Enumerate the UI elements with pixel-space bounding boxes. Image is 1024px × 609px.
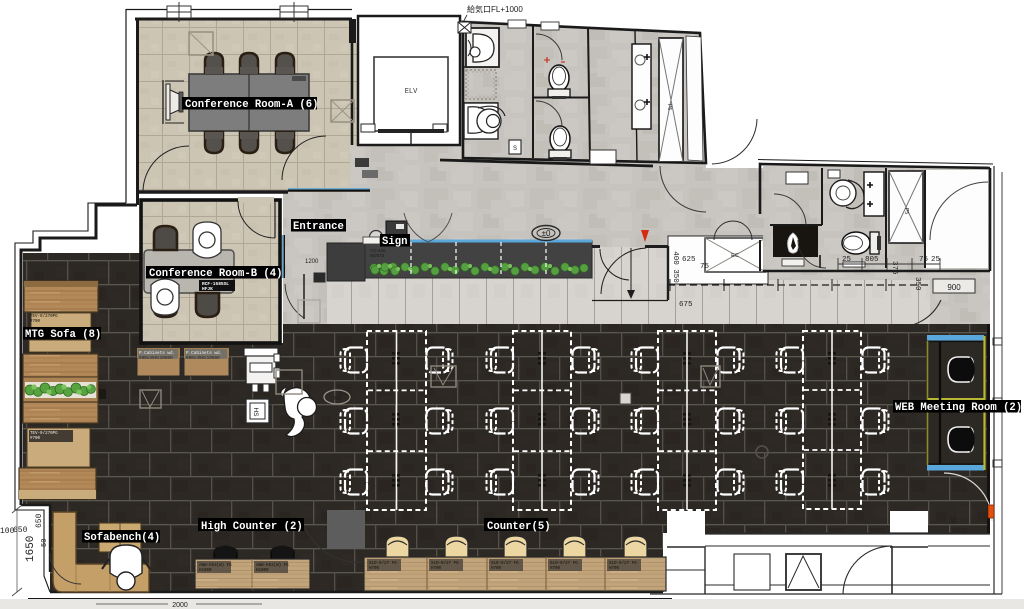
svg-text:350: 350 [913, 277, 921, 291]
svg-text:25: 25 [842, 256, 852, 264]
svg-text:Sofabench(4): Sofabench(4) [84, 532, 160, 544]
svg-text:P5: P5 [903, 208, 909, 214]
svg-text:ELV: ELV [405, 88, 418, 96]
svg-text:S: S [513, 146, 517, 152]
svg-text:#700: #700 [30, 437, 41, 441]
svg-text:±0: ±0 [542, 229, 551, 238]
svg-text:High Counter (2): High Counter (2) [201, 521, 303, 533]
svg-text:EC: EC [731, 253, 739, 259]
svg-text:1200: 1200 [305, 259, 319, 265]
svg-text:350: 350 [671, 269, 679, 283]
svg-text:805: 805 [865, 256, 879, 264]
svg-text:HFJK: HFJK [202, 286, 213, 292]
svg-text:H700: H700 [431, 567, 442, 571]
svg-text:#700: #700 [30, 320, 41, 324]
svg-text:SLO-9/27 FG: SLO-9/27 FG [491, 561, 519, 566]
svg-text:675: 675 [679, 301, 693, 309]
svg-text:75: 75 [919, 256, 929, 264]
svg-text:W2073: W2073 [370, 253, 385, 258]
svg-text:SLO-9/27 FG: SLO-9/27 FG [369, 561, 397, 566]
svg-text:TEV-9/270PG: TEV-9/270PG [30, 314, 58, 319]
svg-text:375: 375 [890, 261, 898, 275]
svg-text:H700: H700 [550, 567, 561, 571]
svg-text:Sign: Sign [382, 236, 407, 248]
svg-text:H1000: H1000 [199, 569, 212, 573]
svg-text:WEB Meeting Room (2): WEB Meeting Room (2) [895, 402, 1022, 414]
svg-text:Counter(5): Counter(5) [487, 521, 551, 533]
svg-text:SLO-9/27 FG: SLO-9/27 FG [431, 561, 459, 566]
svg-text:±0: ±0 [333, 393, 341, 402]
svg-text:ABW-H63(W) FG: ABW-H63(W) FG [256, 563, 289, 568]
svg-text:600x450x1050H: 600x450x1050H [186, 356, 220, 361]
svg-text:給気口FL+1000: 給気口FL+1000 [467, 4, 523, 14]
svg-text:1650: 1650 [25, 536, 37, 562]
svg-text:SLO-9/27 FG: SLO-9/27 FG [609, 561, 637, 566]
svg-text:P5: P5 [666, 104, 672, 110]
svg-text:625: 625 [682, 256, 696, 264]
svg-text:H700: H700 [609, 567, 620, 571]
svg-text:MTG Sofa (8): MTG Sofa (8) [25, 329, 101, 341]
svg-text:Entrance: Entrance [293, 221, 344, 233]
svg-text:650: 650 [35, 513, 44, 528]
svg-text:H700: H700 [369, 567, 380, 571]
svg-text:2000: 2000 [172, 602, 188, 609]
svg-text:25: 25 [931, 256, 941, 264]
svg-text:ABW-H63(W) FG: ABW-H63(W) FG [199, 563, 232, 568]
svg-text:900: 900 [947, 283, 961, 292]
svg-text:Conference Room-B (4): Conference Room-B (4) [149, 268, 283, 280]
svg-text:600x450x1050H: 600x450x1050H [139, 356, 173, 361]
svg-text:SLO-9/27 FG: SLO-9/27 FG [550, 561, 578, 566]
svg-text:H700: H700 [491, 567, 502, 571]
svg-text:35: 35 [952, 517, 958, 524]
svg-text:HS: HS [252, 407, 259, 417]
svg-text:400: 400 [671, 251, 679, 265]
svg-text:50: 50 [41, 539, 49, 547]
svg-text:650: 650 [13, 526, 28, 535]
svg-text:Conference Room-A (6): Conference Room-A (6) [185, 99, 319, 111]
svg-text:75: 75 [700, 263, 710, 271]
svg-text:H1000: H1000 [256, 569, 269, 573]
svg-text:TEV-9/270PG: TEV-9/270PG [30, 431, 58, 436]
